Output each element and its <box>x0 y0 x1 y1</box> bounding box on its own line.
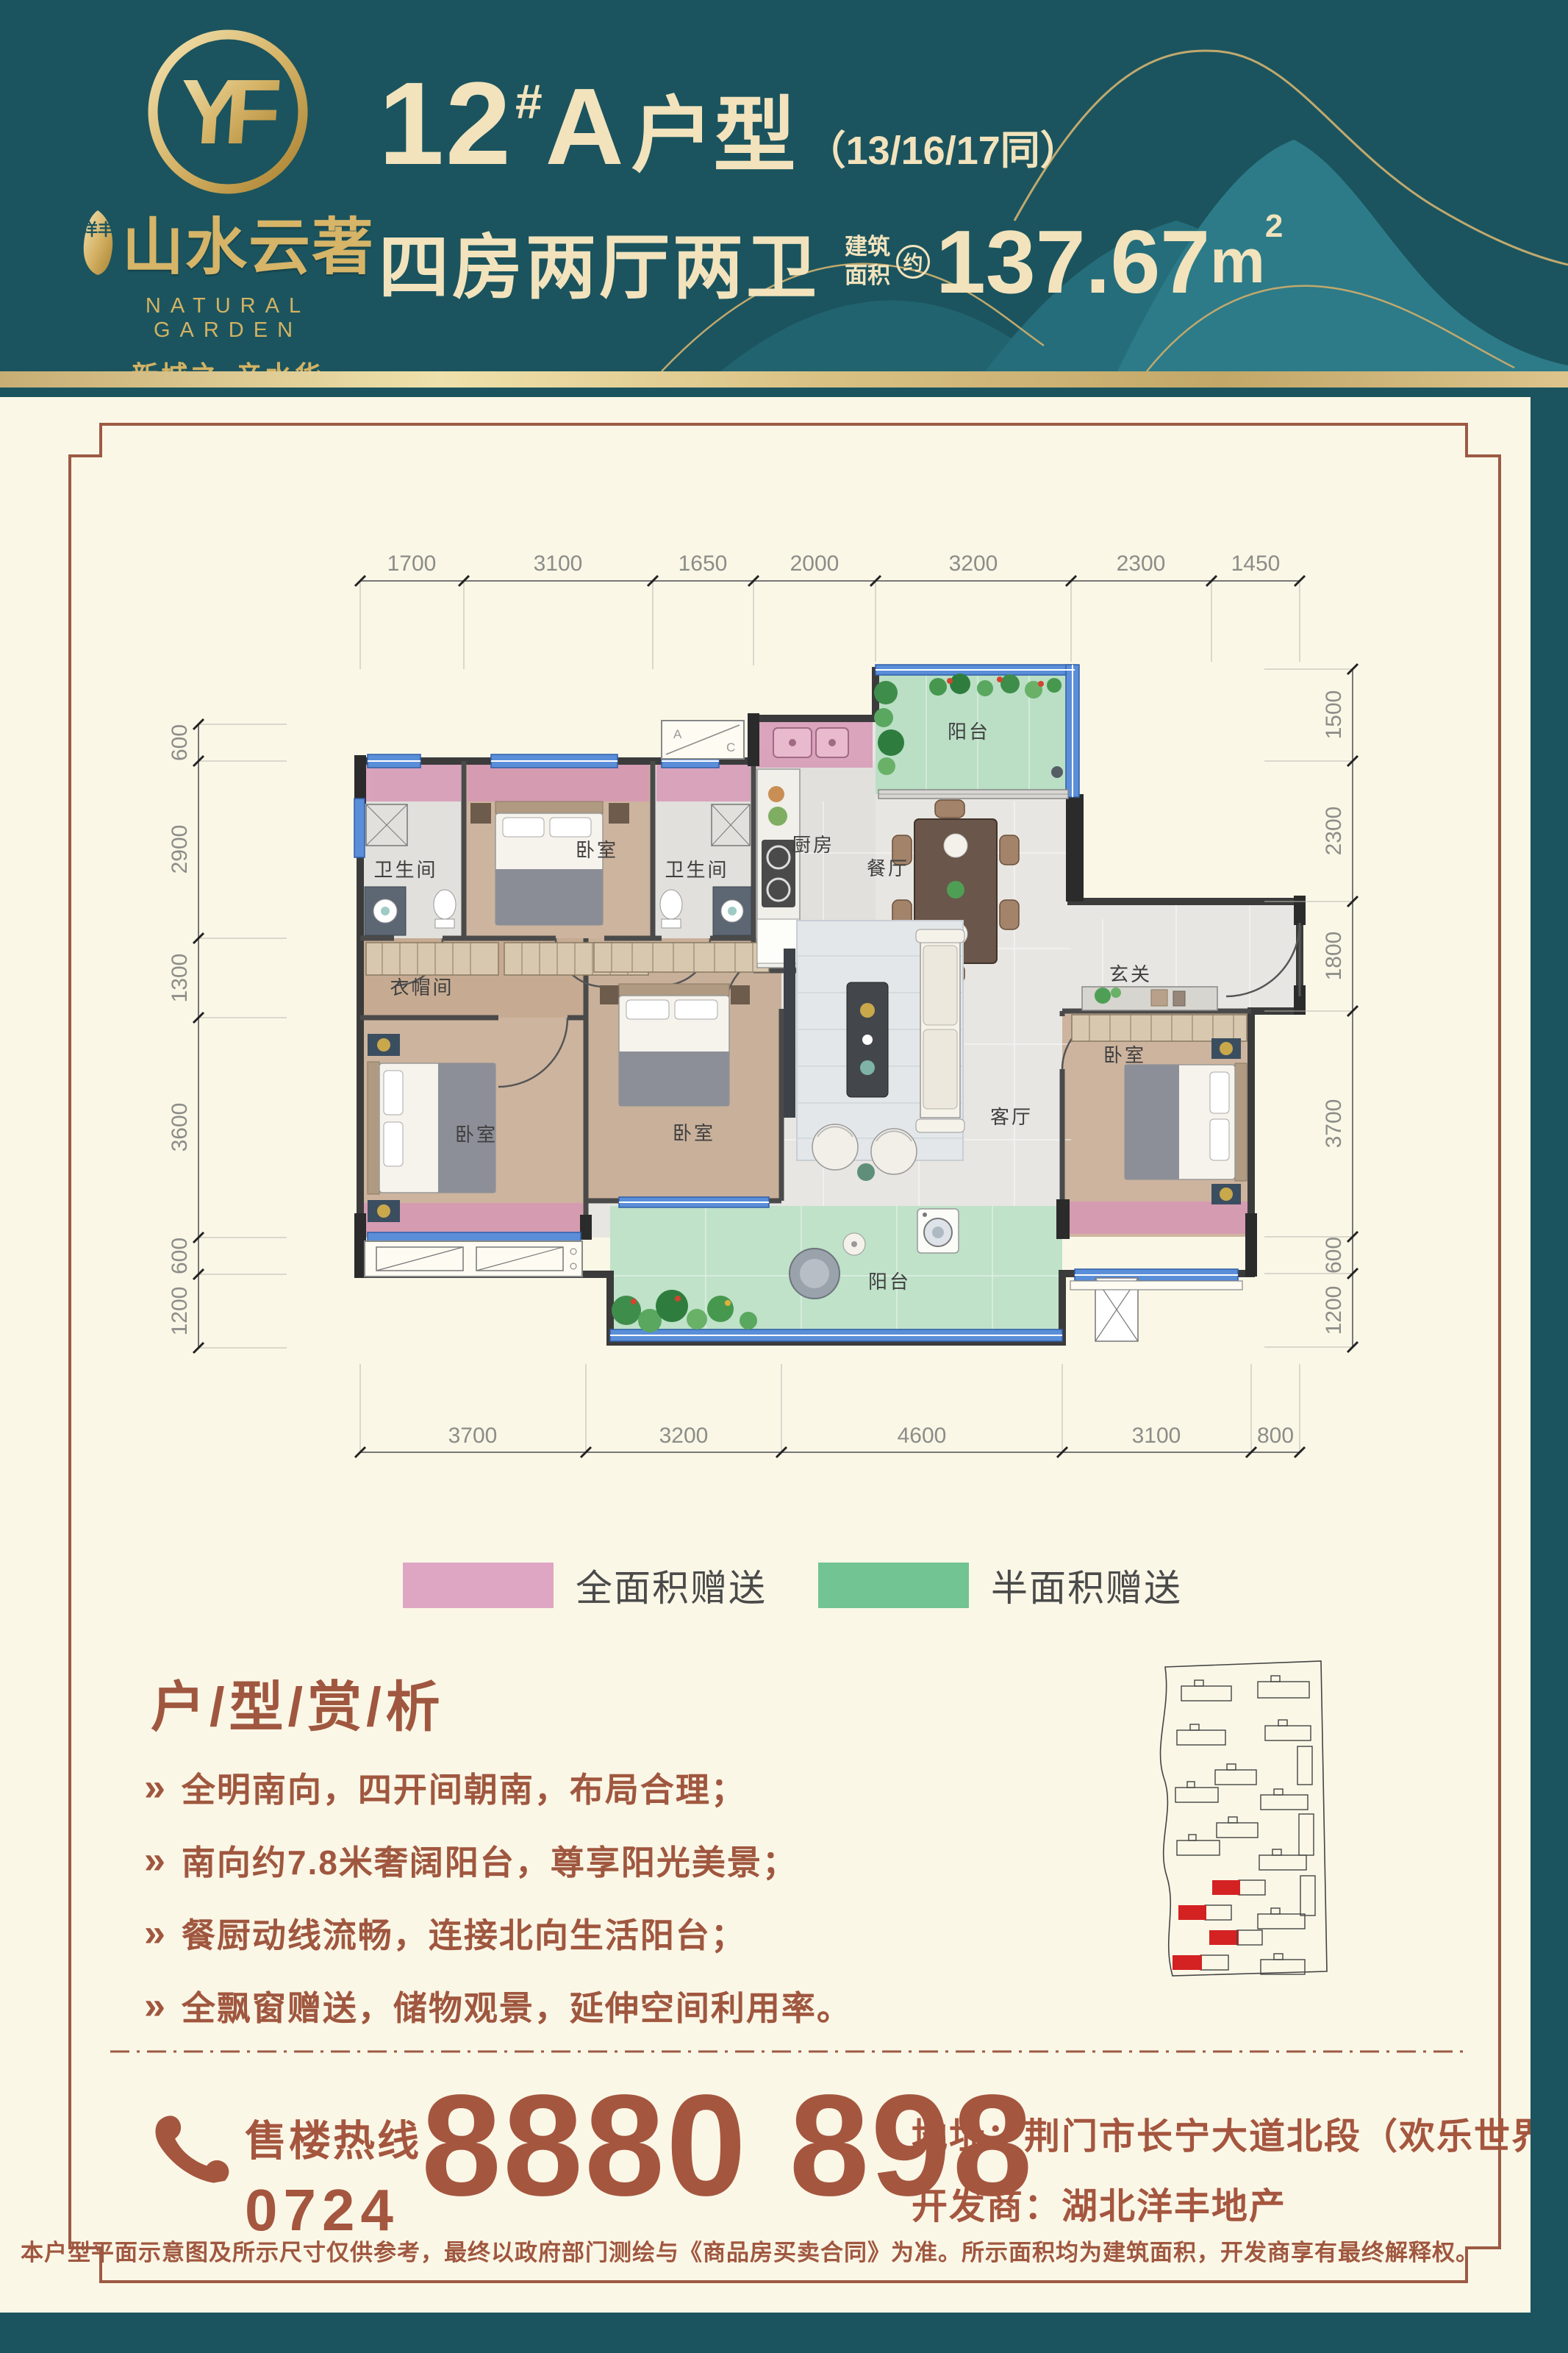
bullet-text-4: 全飘窗赠送，储物观景，延伸空间利用率。 <box>182 1982 852 2030</box>
chevron-icon: » <box>144 1914 165 1952</box>
floor-plan: A C <box>147 507 1419 1478</box>
unit-note: （13/16/17同） <box>806 118 1080 176</box>
bullet-text-1: 全明南向，四开间朝南，布局合理； <box>182 1763 746 1812</box>
analysis-title: 户/型/赏/析 <box>151 1663 445 1742</box>
area-label: 建筑 面积 <box>845 233 890 290</box>
area-value: 137.67 <box>936 217 1210 307</box>
kitchen-sink <box>773 728 848 757</box>
slogan-part-2: 亲水华宅 <box>233 354 327 371</box>
teal-divider-line <box>0 388 1568 397</box>
room-label-cloak: 衣帽间 <box>390 976 454 999</box>
svg-text:3100: 3100 <box>534 551 583 576</box>
legend-swatch-green <box>818 1563 969 1608</box>
svg-text:800: 800 <box>1257 1424 1294 1448</box>
svg-text:3700: 3700 <box>448 1424 498 1448</box>
legend-label-half: 半面积赠送 <box>991 1559 1182 1612</box>
area-label-line2: 面积 <box>845 262 890 290</box>
hotline-block: 售楼热线 0724 <box>245 2107 421 2244</box>
svg-text:1800: 1800 <box>1322 932 1346 981</box>
svg-text:2300: 2300 <box>1322 807 1346 856</box>
room-label-living: 客厅 <box>990 1106 1033 1128</box>
svg-text:1700: 1700 <box>387 551 437 576</box>
bullet-item: » 南向约7.8米奢阔阳台，尊享阳光美景； <box>144 1836 852 1885</box>
svg-text:600: 600 <box>168 724 192 761</box>
svg-text:3100: 3100 <box>1132 1424 1181 1448</box>
contact-section: 售楼热线 0724 8880 898 地址：荆门市长宁大道北段（欢乐世界南） 开… <box>151 2087 1474 2241</box>
analysis-bullets: » 全明南向，四开间朝南，布局合理； » 南向约7.8米奢阔阳台，尊享阳光美景；… <box>144 1763 852 2054</box>
logo-seal-icon: 洋丰 <box>81 209 115 276</box>
room-label-bedroom2: 卧室 <box>673 1122 715 1144</box>
room-label-balcony-s: 阳台 <box>868 1271 911 1293</box>
room-label-dining: 餐厅 <box>867 857 909 879</box>
chevron-icon: » <box>144 1841 165 1879</box>
hotline-label: 售楼热线 <box>245 2107 421 2168</box>
legend-item-full: 全面积赠送 <box>403 1559 767 1612</box>
logo-monogram-text: YF <box>176 60 281 163</box>
legend-item-half: 半面积赠送 <box>818 1559 1182 1612</box>
svg-text:2900: 2900 <box>168 825 192 874</box>
bullet-item: » 餐厨动线流畅，连接北向生活阳台； <box>144 1909 852 1957</box>
room-label-bedroom-n: 卧室 <box>576 839 618 861</box>
legend-swatch-pink <box>403 1563 554 1608</box>
unit-subtitle-row: 四房两厅两卫 建筑 面积 约 137.67 m 2 <box>379 210 1283 313</box>
teal-band-bottom <box>0 2313 1568 2353</box>
room-label-bath2: 卫生间 <box>665 859 728 881</box>
brand-name-en: NATURAL GARDEN <box>81 294 375 343</box>
room-label-master: 卧室 <box>455 1124 498 1146</box>
bullet-text-2: 南向约7.8米奢阔阳台，尊享阳光美景； <box>182 1836 798 1885</box>
unit-title-block: 12 # A 户型 （13/16/17同） 四房两厅两卫 建筑 面积 约 137… <box>379 65 1283 313</box>
logo-monogram-icon: YF <box>140 29 316 195</box>
unit-hash: # <box>515 74 543 129</box>
site-buildings-highlighted <box>1173 1880 1240 1970</box>
bullet-text-3: 餐厨动线流畅，连接北向生活阳台； <box>182 1909 746 1957</box>
svg-text:1650: 1650 <box>679 551 728 576</box>
site-buildings <box>1175 1676 1315 1974</box>
bullet-item: » 全明南向，四开间朝南，布局合理； <box>144 1763 852 1812</box>
area-unit: m <box>1210 226 1265 297</box>
svg-text:1450: 1450 <box>1231 551 1281 576</box>
phone-icon <box>151 2100 232 2218</box>
site-map <box>1114 1643 1349 1989</box>
bullet-item: » 全飘窗赠送，储物观景，延伸空间利用率。 <box>144 1982 852 2030</box>
room-label-foyer: 玄关 <box>1109 963 1152 985</box>
chevron-icon: » <box>144 1987 165 2025</box>
unit-number: 12 <box>379 65 512 182</box>
brand-slogan: 新城之芯 亲水华宅 <box>81 354 375 371</box>
unit-layout: 四房两厅两卫 <box>379 210 820 313</box>
logo-seal-text: 洋丰 <box>82 221 114 239</box>
poster-page: YF 洋丰 山水云著 NATURAL GARDEN 新城之芯 亲水华宅 12 # <box>0 0 1568 2353</box>
svg-text:4600: 4600 <box>898 1424 947 1448</box>
svg-text:C: C <box>726 740 735 754</box>
svg-text:3200: 3200 <box>949 551 998 576</box>
slogan-part-1: 新城之芯 <box>129 354 223 371</box>
chevron-icon: » <box>144 1768 165 1807</box>
room-label-bedroom3: 卧室 <box>1103 1044 1146 1066</box>
unit-suffix: 户型 <box>631 69 796 188</box>
svg-text:600: 600 <box>1322 1237 1346 1274</box>
legend-label-full: 全面积赠送 <box>576 1559 767 1612</box>
area-sup: 2 <box>1265 208 1283 245</box>
approx-badge: 约 <box>896 245 930 279</box>
address-block: 地址：荆门市长宁大道北段（欢乐世界南） 开发商：湖北洋丰地产 <box>912 2107 1568 2247</box>
area-label-line1: 建筑 <box>845 233 890 262</box>
svg-text:2300: 2300 <box>1117 551 1166 576</box>
teal-band-right <box>1531 397 1568 2353</box>
svg-text:1200: 1200 <box>1322 1286 1346 1335</box>
svg-text:3200: 3200 <box>659 1424 709 1448</box>
legend: 全面积赠送 半面积赠送 <box>403 1559 1182 1612</box>
svg-text:2000: 2000 <box>790 551 840 576</box>
svg-text:A: A <box>673 727 682 741</box>
svg-text:1200: 1200 <box>168 1287 192 1336</box>
address-line: 地址：荆门市长宁大道北段（欢乐世界南） <box>912 2107 1568 2160</box>
room-label-balcony-n: 阳台 <box>948 721 990 743</box>
svg-text:3600: 3600 <box>168 1103 192 1152</box>
developer-line: 开发商：湖北洋丰地产 <box>912 2177 1568 2229</box>
header: YF 洋丰 山水云著 NATURAL GARDEN 新城之芯 亲水华宅 12 # <box>0 0 1568 371</box>
unit-title-row: 12 # A 户型 （13/16/17同） <box>379 65 1283 188</box>
svg-text:600: 600 <box>168 1238 192 1274</box>
svg-text:1300: 1300 <box>168 954 192 1003</box>
brand-name: 山水云著 <box>122 198 375 287</box>
room-label-bath1: 卫生间 <box>373 859 437 881</box>
room-label-kitchen: 厨房 <box>792 834 834 856</box>
svg-text:1500: 1500 <box>1322 690 1346 740</box>
brand-logo: YF 洋丰 山水云著 NATURAL GARDEN 新城之芯 亲水华宅 <box>81 29 375 371</box>
gold-stripe <box>0 371 1568 388</box>
svg-text:3700: 3700 <box>1322 1099 1346 1149</box>
disclaimer: 本户型平面示意图及所示尺寸仅供参考，最终以政府部门测绘与《商品房买卖合同》为准。… <box>0 2234 1500 2267</box>
unit-letter: A <box>545 73 624 182</box>
